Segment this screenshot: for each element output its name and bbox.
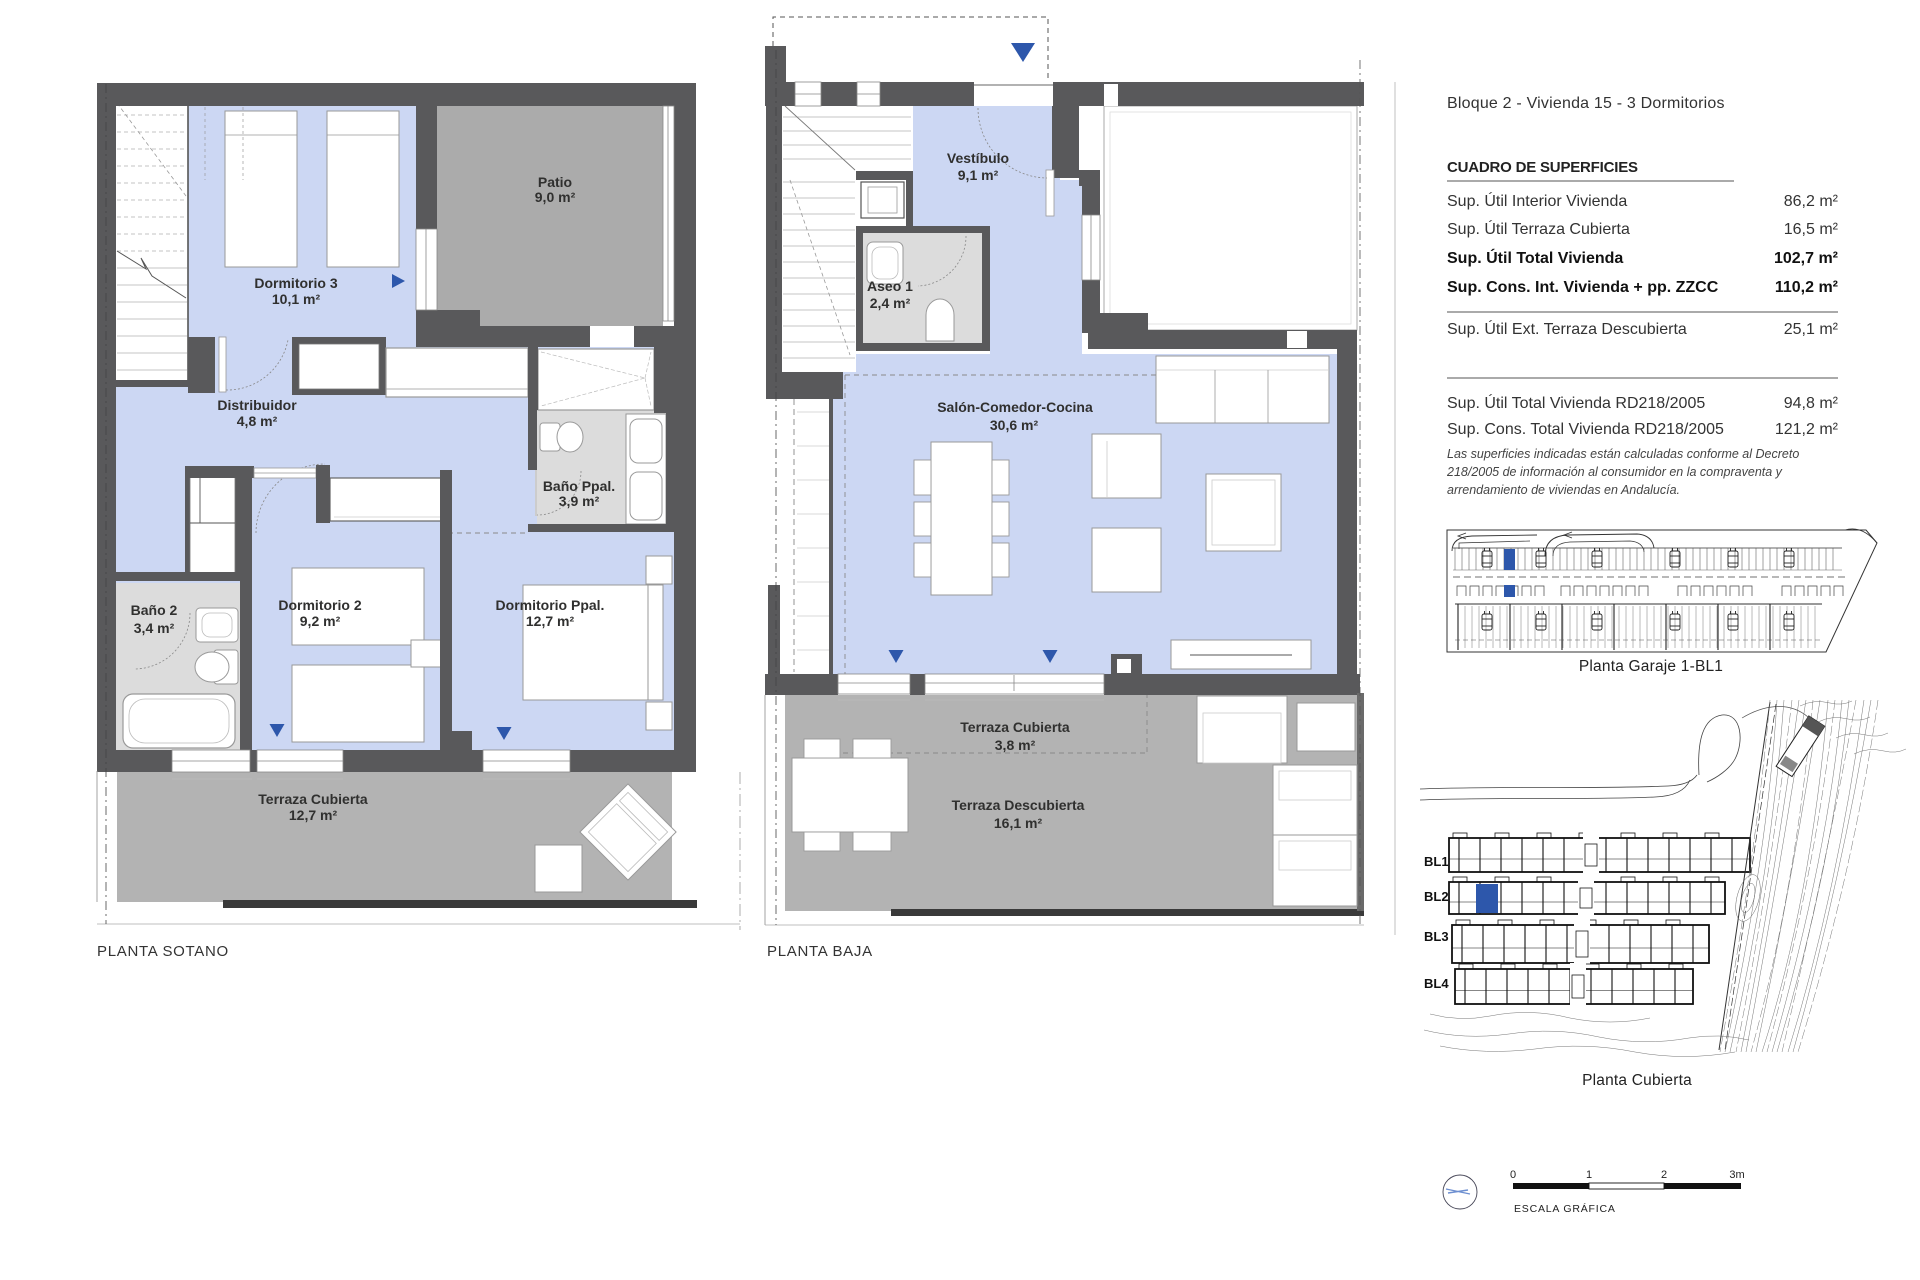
svg-text:218/2005 de información al con: 218/2005 de información al consumidor en… — [1446, 465, 1783, 479]
svg-text:BL4: BL4 — [1424, 976, 1449, 991]
svg-text:PLANTA SOTANO: PLANTA SOTANO — [97, 943, 229, 960]
svg-text:arrendamiento de viviendas en: arrendamiento de viviendas en Andalucía. — [1447, 483, 1680, 497]
svg-text:Las superficies indicadas está: Las superficies indicadas están calculad… — [1447, 447, 1799, 461]
svg-text:Planta Cubierta: Planta Cubierta — [1582, 1072, 1692, 1089]
svg-text:PLANTA BAJA: PLANTA BAJA — [767, 943, 873, 960]
svg-text:Dormitorio 3: Dormitorio 3 — [254, 275, 337, 291]
svg-text:Dormitorio Ppal.: Dormitorio Ppal. — [496, 597, 605, 613]
svg-text:Aseo 1: Aseo 1 — [867, 278, 913, 294]
svg-text:9,2 m²: 9,2 m² — [300, 613, 341, 629]
svg-text:BL3: BL3 — [1424, 929, 1449, 944]
svg-text:Sup. Útil Terraza Cubierta: Sup. Útil Terraza Cubierta — [1447, 219, 1630, 238]
svg-text:12,7 m²: 12,7 m² — [526, 613, 575, 629]
svg-text:Sup. Útil Interior Vivienda: Sup. Útil Interior Vivienda — [1447, 191, 1627, 210]
svg-text:Sup. Útil Total Vivienda: Sup. Útil Total Vivienda — [1447, 248, 1623, 267]
svg-text:16,1 m²: 16,1 m² — [994, 815, 1043, 831]
svg-text:3m: 3m — [1729, 1169, 1744, 1181]
svg-text:Distribuidor: Distribuidor — [217, 397, 297, 413]
svg-text:Terraza Descubierta: Terraza Descubierta — [952, 797, 1085, 813]
svg-text:3,9 m²: 3,9 m² — [559, 493, 600, 509]
svg-text:4,8 m²: 4,8 m² — [237, 413, 278, 429]
svg-text:Terraza Cubierta: Terraza Cubierta — [258, 791, 368, 807]
svg-text:BL2: BL2 — [1424, 889, 1449, 904]
svg-text:110,2 m²: 110,2 m² — [1775, 279, 1838, 296]
svg-text:CUADRO DE SUPERFICIES: CUADRO DE SUPERFICIES — [1447, 159, 1638, 176]
svg-text:Terraza Cubierta: Terraza Cubierta — [960, 719, 1070, 735]
svg-text:30,6 m²: 30,6 m² — [990, 417, 1039, 433]
svg-text:12,7 m²: 12,7 m² — [289, 807, 338, 823]
svg-text:94,8 m²: 94,8 m² — [1784, 395, 1839, 412]
svg-text:3,4 m²: 3,4 m² — [134, 620, 175, 636]
svg-text:Sup. Útil Ext. Terraza Descubi: Sup. Útil Ext. Terraza Descubierta — [1447, 319, 1687, 338]
svg-text:102,7 m²: 102,7 m² — [1774, 250, 1838, 267]
svg-text:Sup. Útil Total Vivienda RD218: Sup. Útil Total Vivienda RD218/2005 — [1447, 393, 1705, 412]
svg-text:Bloque 2 - Vivienda 15 - 3 Dor: Bloque 2 - Vivienda 15 - 3 Dormitorios — [1447, 95, 1725, 112]
svg-text:121,2 m²: 121,2 m² — [1775, 421, 1839, 438]
svg-text:9,0 m²: 9,0 m² — [535, 189, 576, 205]
svg-text:Vestíbulo: Vestíbulo — [947, 150, 1009, 166]
svg-text:ESCALA GRÁFICA: ESCALA GRÁFICA — [1514, 1202, 1616, 1215]
svg-text:Baño 2: Baño 2 — [131, 602, 178, 618]
svg-text:1: 1 — [1586, 1169, 1592, 1181]
svg-text:16,5 m²: 16,5 m² — [1784, 221, 1839, 238]
svg-text:Patio: Patio — [538, 174, 572, 190]
svg-text:Salón-Comedor-Cocina: Salón-Comedor-Cocina — [937, 399, 1093, 415]
svg-text:10,1 m²: 10,1 m² — [272, 291, 321, 307]
svg-text:2: 2 — [1661, 1169, 1667, 1181]
svg-text:0: 0 — [1510, 1169, 1516, 1181]
svg-text:Baño Ppal.: Baño Ppal. — [543, 478, 615, 494]
svg-text:Sup. Cons. Total Vivienda RD21: Sup. Cons. Total Vivienda RD218/2005 — [1447, 421, 1724, 438]
svg-text:9,1 m²: 9,1 m² — [958, 167, 999, 183]
svg-text:Sup. Cons. Int. Vivienda + pp.: Sup. Cons. Int. Vivienda + pp. ZZCC — [1447, 279, 1719, 296]
svg-text:3,8 m²: 3,8 m² — [995, 737, 1036, 753]
svg-text:BL1: BL1 — [1424, 854, 1449, 869]
svg-text:2,4 m²: 2,4 m² — [870, 295, 911, 311]
svg-text:Planta Garaje 1-BL1: Planta Garaje 1-BL1 — [1579, 658, 1723, 675]
svg-text:25,1 m²: 25,1 m² — [1784, 321, 1839, 338]
svg-text:86,2 m²: 86,2 m² — [1784, 193, 1839, 210]
svg-text:Dormitorio 2: Dormitorio 2 — [278, 597, 361, 613]
